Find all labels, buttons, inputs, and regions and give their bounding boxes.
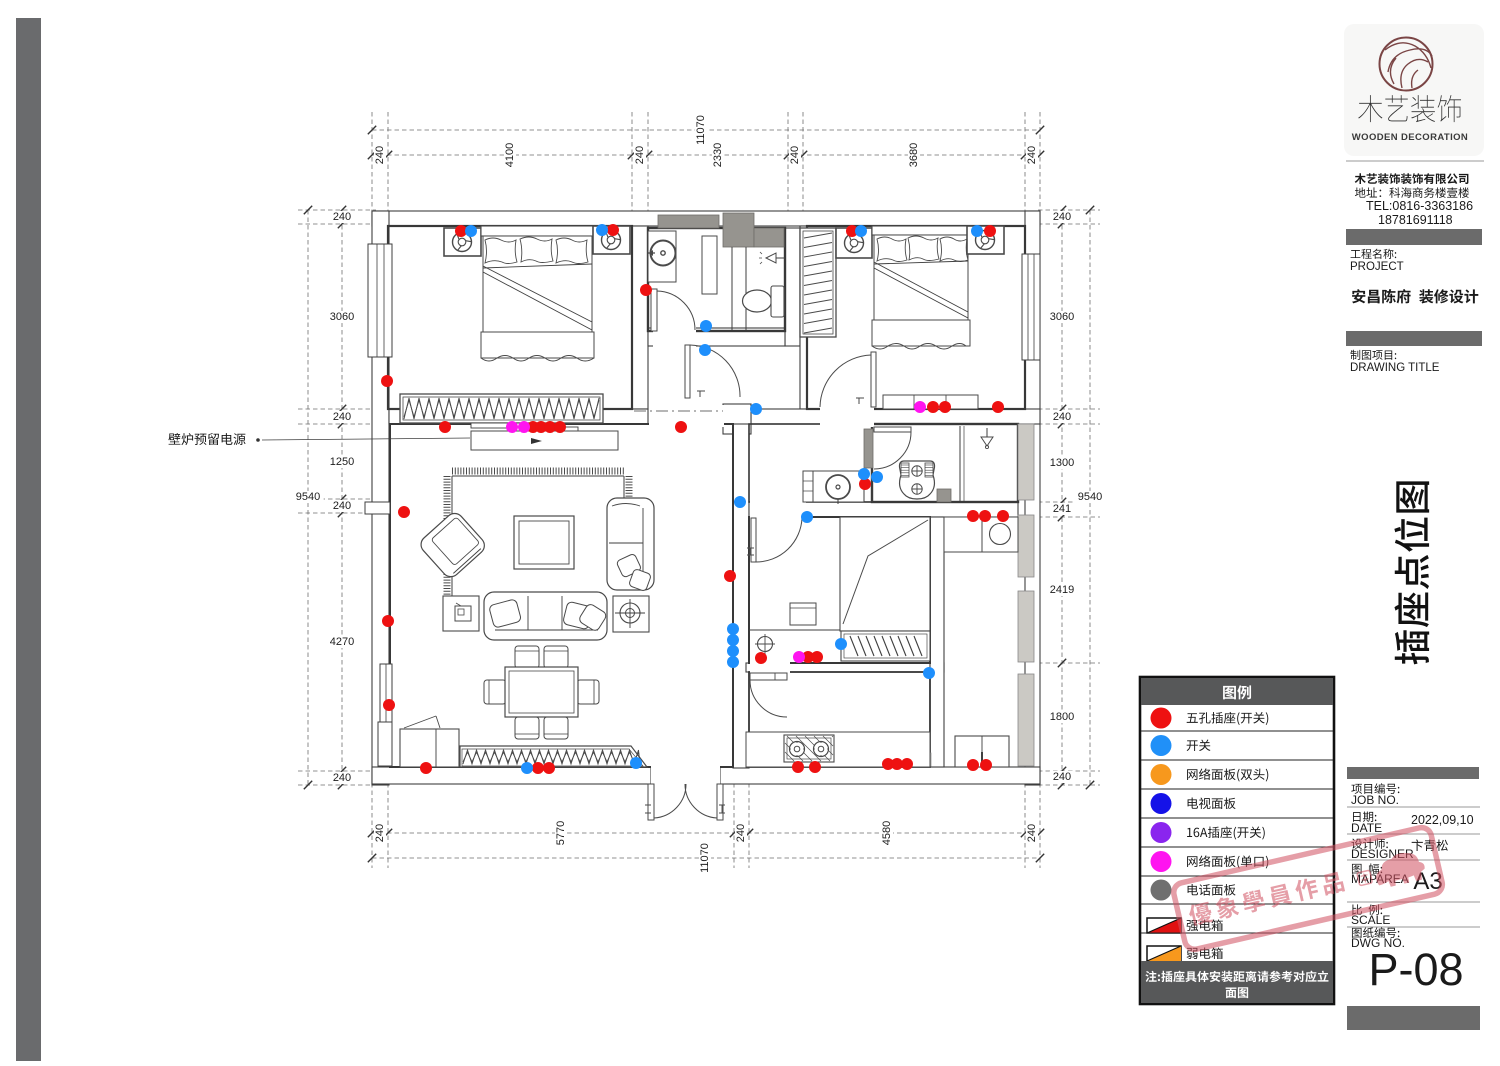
svg-text:3680: 3680 — [908, 143, 920, 167]
svg-text:18781691118: 18781691118 — [1378, 213, 1453, 227]
svg-text:240: 240 — [333, 500, 351, 512]
svg-text:TEL:0816-3363186: TEL:0816-3363186 — [1366, 199, 1473, 213]
svg-text:JOB NO.: JOB NO. — [1351, 793, 1399, 807]
svg-text:4100: 4100 — [504, 143, 516, 167]
svg-text:5770: 5770 — [555, 821, 567, 845]
svg-text:9540: 9540 — [1078, 491, 1102, 503]
svg-text:240: 240 — [1026, 824, 1038, 842]
svg-text:4580: 4580 — [881, 821, 893, 845]
svg-text:DATE: DATE — [1351, 821, 1382, 835]
svg-text:240: 240 — [1026, 146, 1038, 164]
svg-text:WOODEN DECORATION: WOODEN DECORATION — [1352, 132, 1468, 143]
svg-text:DRAWING TITLE: DRAWING TITLE — [1350, 362, 1440, 374]
svg-text:1250: 1250 — [330, 456, 354, 468]
svg-text:240: 240 — [333, 411, 351, 423]
svg-text:240: 240 — [374, 146, 386, 164]
svg-text:240: 240 — [1053, 411, 1071, 423]
svg-text:4270: 4270 — [330, 636, 354, 648]
svg-text:11070: 11070 — [695, 115, 707, 145]
svg-text:240: 240 — [333, 211, 351, 223]
svg-text:240: 240 — [1053, 211, 1071, 223]
svg-text:P-08: P-08 — [1368, 944, 1463, 995]
svg-text:240: 240 — [634, 146, 646, 164]
svg-text:240: 240 — [1053, 771, 1071, 783]
svg-text:241: 241 — [1053, 503, 1071, 515]
svg-text:1800: 1800 — [1050, 711, 1074, 723]
svg-text:1300: 1300 — [1050, 457, 1074, 469]
svg-text:2330: 2330 — [712, 143, 724, 167]
svg-text:3060: 3060 — [1050, 311, 1074, 323]
svg-text:3060: 3060 — [330, 311, 354, 323]
svg-text:240: 240 — [374, 824, 386, 842]
svg-text:PROJECT: PROJECT — [1350, 261, 1404, 273]
svg-text:SCALE: SCALE — [1351, 913, 1390, 927]
svg-text:2022,09,10: 2022,09,10 — [1411, 813, 1474, 827]
svg-text:11070: 11070 — [699, 843, 711, 873]
svg-text:240: 240 — [789, 146, 801, 164]
svg-text:2419: 2419 — [1050, 584, 1074, 596]
svg-text:240: 240 — [735, 824, 747, 842]
svg-text:240: 240 — [333, 772, 351, 784]
svg-text:9540: 9540 — [296, 491, 320, 503]
